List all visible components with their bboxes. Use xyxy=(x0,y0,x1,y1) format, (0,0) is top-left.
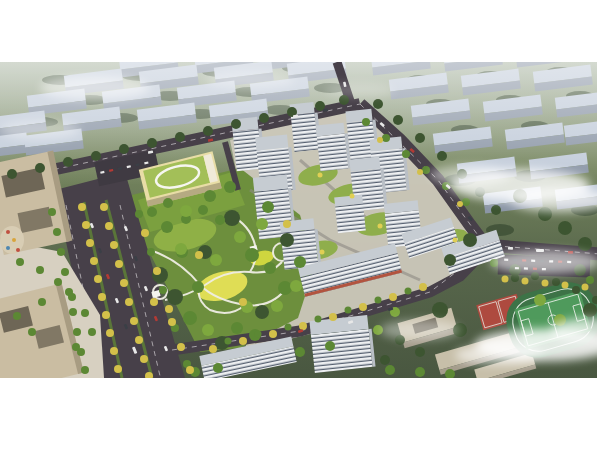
south-slab xyxy=(309,315,375,373)
screenshot-canvas xyxy=(0,0,600,450)
playground xyxy=(0,226,24,254)
midrise xyxy=(334,195,366,234)
aerial-rendering xyxy=(0,0,600,450)
aerial-photo xyxy=(0,41,600,393)
